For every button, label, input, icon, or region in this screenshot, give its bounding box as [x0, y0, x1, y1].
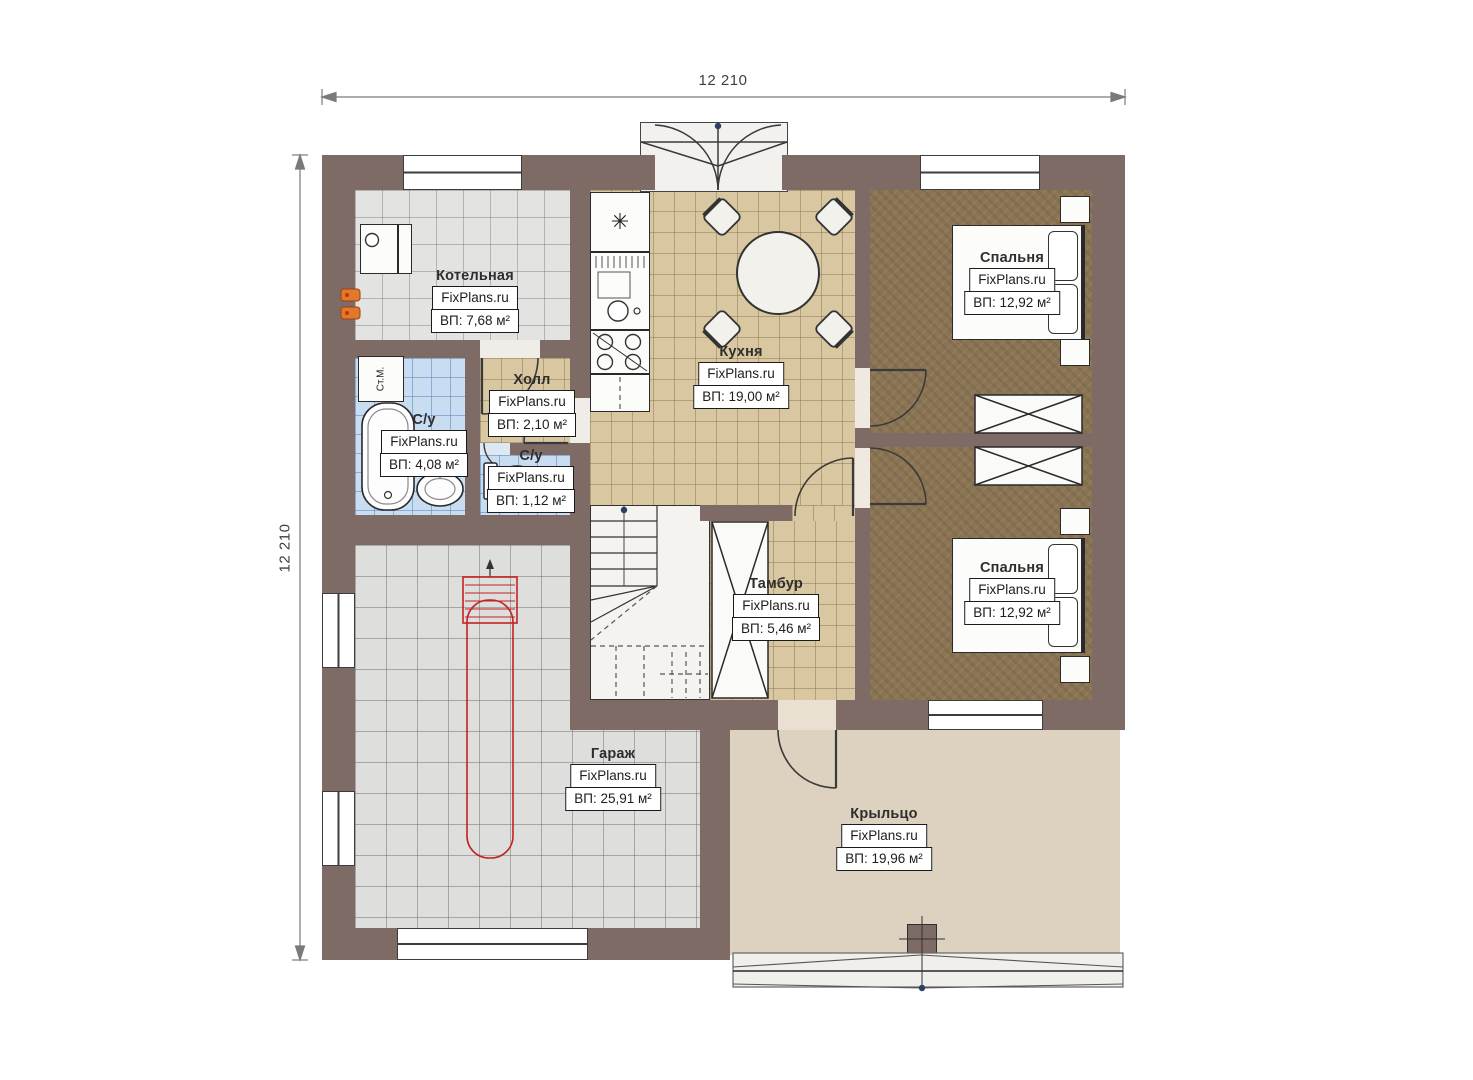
- kitchen-stove: [590, 330, 650, 374]
- brand-watermark: FixPlans.ru: [381, 430, 467, 454]
- dimension-line-top: [322, 89, 1125, 105]
- room-name: С/у: [380, 412, 468, 428]
- window: [920, 155, 1040, 190]
- room-label-su-small: С/у FixPlans.ru ВП: 1,12 м²: [487, 448, 575, 513]
- kitchen-counter-sink: [590, 252, 650, 330]
- room-area: ВП: 5,46 м²: [732, 617, 820, 641]
- window: [322, 791, 355, 866]
- wall-segment: [700, 505, 792, 521]
- nightstand: [1060, 339, 1090, 366]
- fridge-snowflake-icon: ✳: [591, 193, 649, 251]
- room-label-krylco: Крыльцо FixPlans.ru ВП: 19,96 м²: [836, 806, 932, 871]
- window: [928, 700, 1043, 730]
- wall-segment: [322, 928, 397, 960]
- washing-machine: Ст.М.: [358, 356, 404, 402]
- room-name: Гараж: [565, 746, 661, 762]
- boiler-unit: [360, 224, 398, 274]
- room-name: Тамбур: [732, 576, 820, 592]
- floor-stairwell: [590, 505, 710, 700]
- room-area: ВП: 19,96 м²: [836, 847, 932, 871]
- garage-door: [397, 928, 588, 960]
- room-label-spalnya-bottom: Спальня FixPlans.ru ВП: 12,92 м²: [964, 560, 1060, 625]
- room-area: ВП: 12,92 м²: [964, 601, 1060, 625]
- brand-watermark: FixPlans.ru: [969, 268, 1055, 292]
- brand-watermark: FixPlans.ru: [698, 362, 784, 386]
- wall-segment: [570, 190, 590, 398]
- window: [403, 155, 522, 190]
- room-area: ВП: 7,68 м²: [431, 309, 519, 333]
- floor-plan: ✳ Ст.М.: [0, 0, 1473, 1080]
- dimension-line-left: [292, 155, 308, 960]
- brand-watermark: FixPlans.ru: [488, 466, 574, 490]
- threshold-tambur: [792, 505, 855, 521]
- room-area: ВП: 4,08 м²: [380, 453, 468, 477]
- wall-segment: [855, 508, 870, 700]
- dimension-label-left: 12 210: [277, 524, 294, 573]
- room-name: Крыльцо: [836, 806, 932, 822]
- wall-segment: [870, 433, 1092, 447]
- room-area: ВП: 25,91 м²: [565, 787, 661, 811]
- porch-column: [907, 924, 937, 954]
- room-name: Холл: [488, 372, 576, 388]
- wall-segment: [700, 700, 778, 730]
- room-area: ВП: 1,12 м²: [487, 489, 575, 513]
- wall-segment: [540, 340, 570, 358]
- wall-segment: [322, 668, 355, 791]
- wall-segment: [836, 700, 928, 730]
- brand-watermark: FixPlans.ru: [841, 824, 927, 848]
- kitchen-cabinet: [590, 374, 650, 412]
- room-label-su-big: С/у FixPlans.ru ВП: 4,08 м²: [380, 412, 468, 477]
- room-name: Спальня: [964, 560, 1060, 576]
- room-name: Спальня: [964, 250, 1060, 266]
- room-label-tambur: Тамбур FixPlans.ru ВП: 5,46 м²: [732, 576, 820, 641]
- nightstand: [1060, 508, 1090, 535]
- room-area: ВП: 12,92 м²: [964, 291, 1060, 315]
- room-name: С/у: [487, 448, 575, 464]
- wall-segment: [855, 190, 870, 368]
- brand-watermark: FixPlans.ru: [432, 286, 518, 310]
- washing-machine-label: Ст.М.: [376, 367, 387, 392]
- brand-watermark: FixPlans.ru: [489, 390, 575, 414]
- room-name: Котельная: [431, 268, 519, 284]
- threshold-bedroom-bottom: [855, 448, 870, 508]
- brand-watermark: FixPlans.ru: [570, 764, 656, 788]
- dimension-label-top: 12 210: [699, 72, 748, 89]
- brand-watermark: FixPlans.ru: [733, 594, 819, 618]
- room-label-holl: Холл FixPlans.ru ВП: 2,10 м²: [488, 372, 576, 437]
- room-area: ВП: 2,10 м²: [488, 413, 576, 437]
- fridge: ✳: [590, 192, 650, 252]
- threshold-porch-door: [778, 700, 836, 730]
- wall-segment: [782, 155, 920, 190]
- window: [322, 593, 355, 668]
- room-label-kuhnya: Кухня FixPlans.ru ВП: 19,00 м²: [693, 344, 789, 409]
- wall-segment: [522, 155, 655, 190]
- wall-segment: [700, 730, 730, 960]
- brand-watermark: FixPlans.ru: [969, 578, 1055, 602]
- wall-segment: [1092, 155, 1125, 730]
- threshold-bedroom-top: [855, 368, 870, 428]
- wall-segment: [1043, 700, 1125, 730]
- threshold-boiler-hall: [480, 340, 540, 358]
- wall-segment: [855, 428, 870, 448]
- wall-segment: [322, 515, 570, 545]
- boiler-side-panel: [398, 224, 412, 274]
- wall-segment: [570, 700, 700, 730]
- nightstand: [1060, 196, 1090, 223]
- entry-door-vestibule: [640, 122, 788, 192]
- room-label-kotelnaya: Котельная FixPlans.ru ВП: 7,68 м²: [431, 268, 519, 333]
- room-label-spalnya-top: Спальня FixPlans.ru ВП: 12,92 м²: [964, 250, 1060, 315]
- room-label-garazh: Гараж FixPlans.ru ВП: 25,91 м²: [565, 746, 661, 811]
- nightstand: [1060, 656, 1090, 683]
- room-name: Кухня: [693, 344, 789, 360]
- room-area: ВП: 19,00 м²: [693, 385, 789, 409]
